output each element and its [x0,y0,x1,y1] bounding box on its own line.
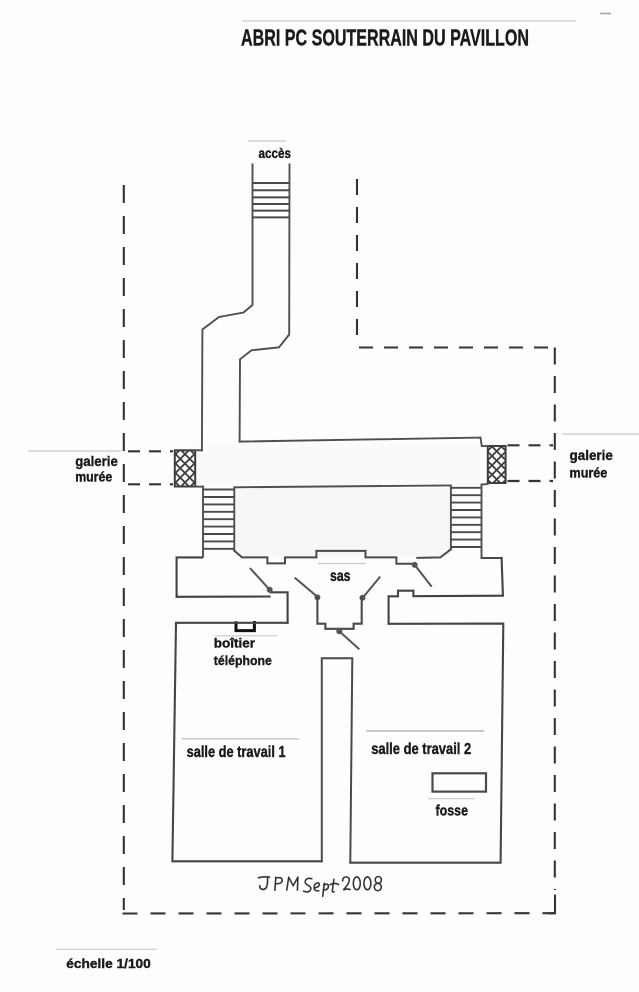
svg-text:murée: murée [75,469,112,485]
svg-text:sas: sas [330,568,351,585]
svg-text:salle de travail 1: salle de travail 1 [187,744,286,761]
svg-text:fosse: fosse [436,804,469,820]
svg-text:galerie: galerie [570,447,614,463]
svg-text:accès: accès [259,146,292,161]
svg-text:ABRI PC SOUTERRAIN DU PAVILLON: ABRI PC SOUTERRAIN DU PAVILLON [241,25,529,51]
svg-text:échelle 1/100: échelle 1/100 [66,956,151,971]
svg-text:boîtier: boîtier [214,637,255,651]
svg-text:téléphone: téléphone [214,653,272,668]
svg-text:salle de travail 2: salle de travail 2 [371,741,471,758]
svg-text:galerie: galerie [75,453,118,469]
svg-text:murée: murée [570,465,608,481]
